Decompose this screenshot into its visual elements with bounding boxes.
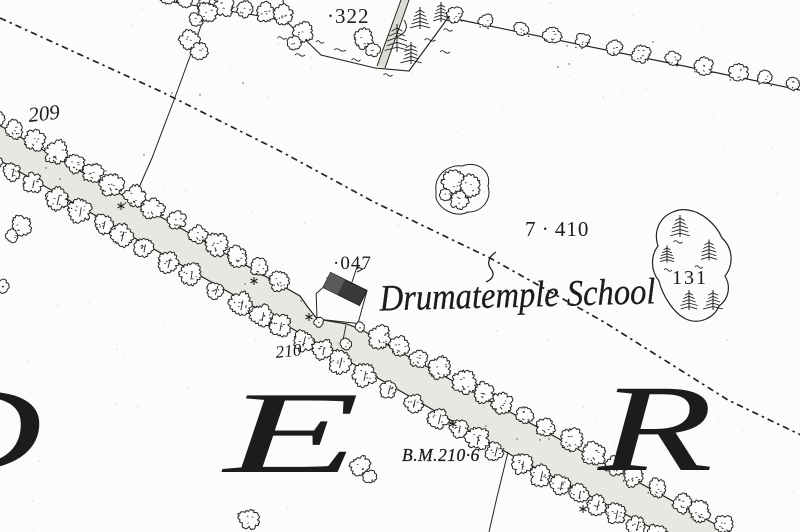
svg-text:209: 209 (27, 100, 61, 127)
svg-text:131: 131 (672, 267, 708, 289)
svg-text:7 · 410: 7 · 410 (525, 217, 589, 241)
svg-text:Drumatemple School: Drumatemple School (378, 270, 656, 319)
svg-text:210: 210 (274, 339, 302, 362)
svg-text:R: R (597, 360, 713, 498)
svg-text:·322: ·322 (327, 4, 370, 28)
svg-text:D: D (0, 364, 42, 497)
svg-text:·047: ·047 (333, 253, 372, 274)
svg-text:E: E (220, 369, 360, 498)
svg-text:B.M.210·6: B.M.210·6 (402, 445, 480, 465)
